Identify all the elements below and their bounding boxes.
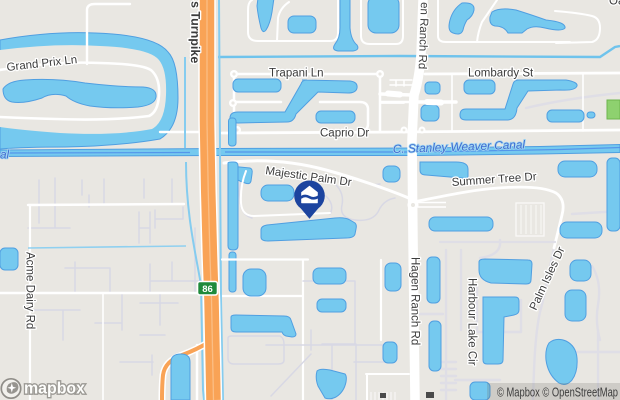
svg-text:mapbox: mapbox — [24, 379, 86, 398]
svg-text:Caprio Dr: Caprio Dr — [320, 128, 369, 140]
svg-text:Trapani Ln: Trapani Ln — [269, 68, 324, 80]
svg-text:Harbour Lake Cir: Harbour Lake Cir — [466, 278, 478, 366]
svg-text:Oa: Oa — [609, 0, 620, 8]
svg-text:Hagen Ranch Rd: Hagen Ranch Rd — [409, 257, 421, 345]
svg-text:en Ranch Rd: en Ranch Rd — [416, 2, 430, 70]
svg-text:86: 86 — [202, 284, 213, 295]
svg-text:s Turnpike: s Turnpike — [188, 1, 203, 63]
svg-text:Acme Dairy Rd: Acme Dairy Rd — [24, 252, 36, 329]
svg-text:Lombardy St: Lombardy St — [468, 68, 534, 80]
svg-text:al: al — [0, 148, 10, 162]
svg-text:© Mapbox © OpenStreetMap: © Mapbox © OpenStreetMap — [497, 386, 618, 400]
